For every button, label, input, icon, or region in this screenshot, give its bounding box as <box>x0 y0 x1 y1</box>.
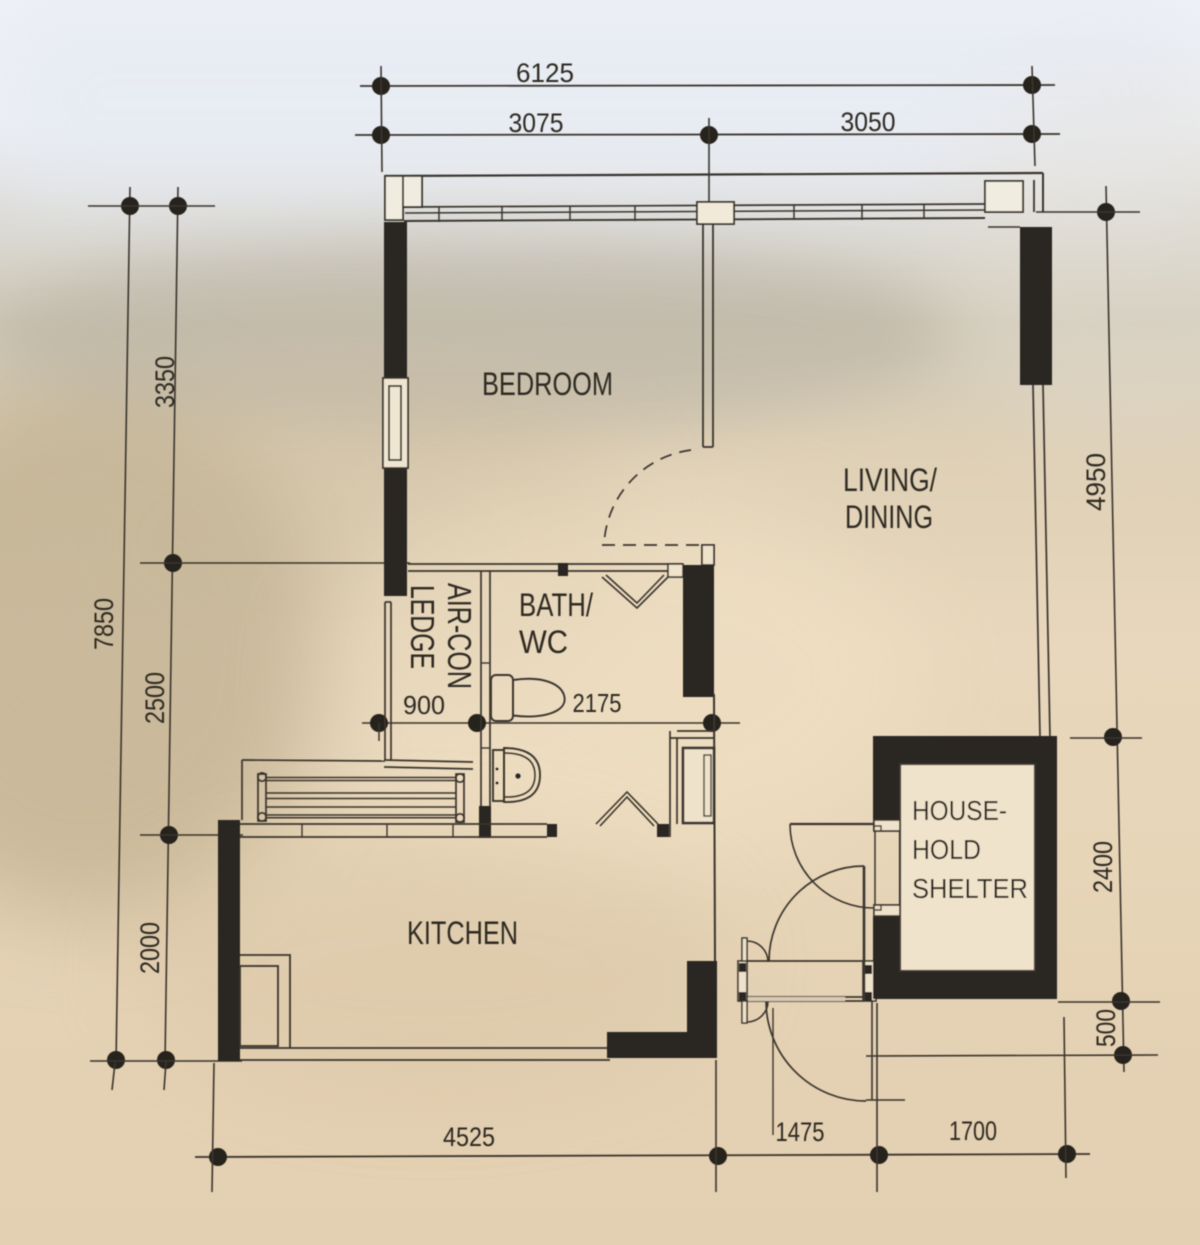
svg-text:7850: 7850 <box>89 598 119 650</box>
svg-text:BATH/: BATH/ <box>519 587 593 623</box>
svg-text:4950: 4950 <box>1081 453 1111 511</box>
svg-text:1475: 1475 <box>776 1117 825 1147</box>
svg-text:HOUSE-: HOUSE- <box>912 795 1007 826</box>
svg-text:2500: 2500 <box>140 672 170 724</box>
svg-text:DINING: DINING <box>845 499 933 535</box>
svg-text:2000: 2000 <box>135 922 165 974</box>
svg-text:BEDROOM: BEDROOM <box>482 366 613 402</box>
svg-text:3075: 3075 <box>509 108 564 138</box>
svg-text:HOLD: HOLD <box>912 834 981 865</box>
svg-text:3050: 3050 <box>841 107 896 137</box>
svg-text:2175: 2175 <box>573 688 622 718</box>
svg-text:6125: 6125 <box>516 58 574 88</box>
svg-text:LEDGE: LEDGE <box>404 585 441 669</box>
svg-text:500: 500 <box>1091 1009 1121 1047</box>
svg-text:2400: 2400 <box>1088 841 1118 893</box>
svg-text:3350: 3350 <box>150 356 180 408</box>
svg-text:KITCHEN: KITCHEN <box>407 915 518 951</box>
svg-text:1700: 1700 <box>949 1116 997 1146</box>
svg-text:AIR-CON: AIR-CON <box>441 583 478 689</box>
svg-text:WC: WC <box>519 624 568 660</box>
svg-text:LIVING/: LIVING/ <box>843 462 937 498</box>
svg-text:SHELTER: SHELTER <box>912 873 1028 904</box>
svg-text:900: 900 <box>403 690 445 720</box>
svg-text:4525: 4525 <box>443 1122 495 1152</box>
